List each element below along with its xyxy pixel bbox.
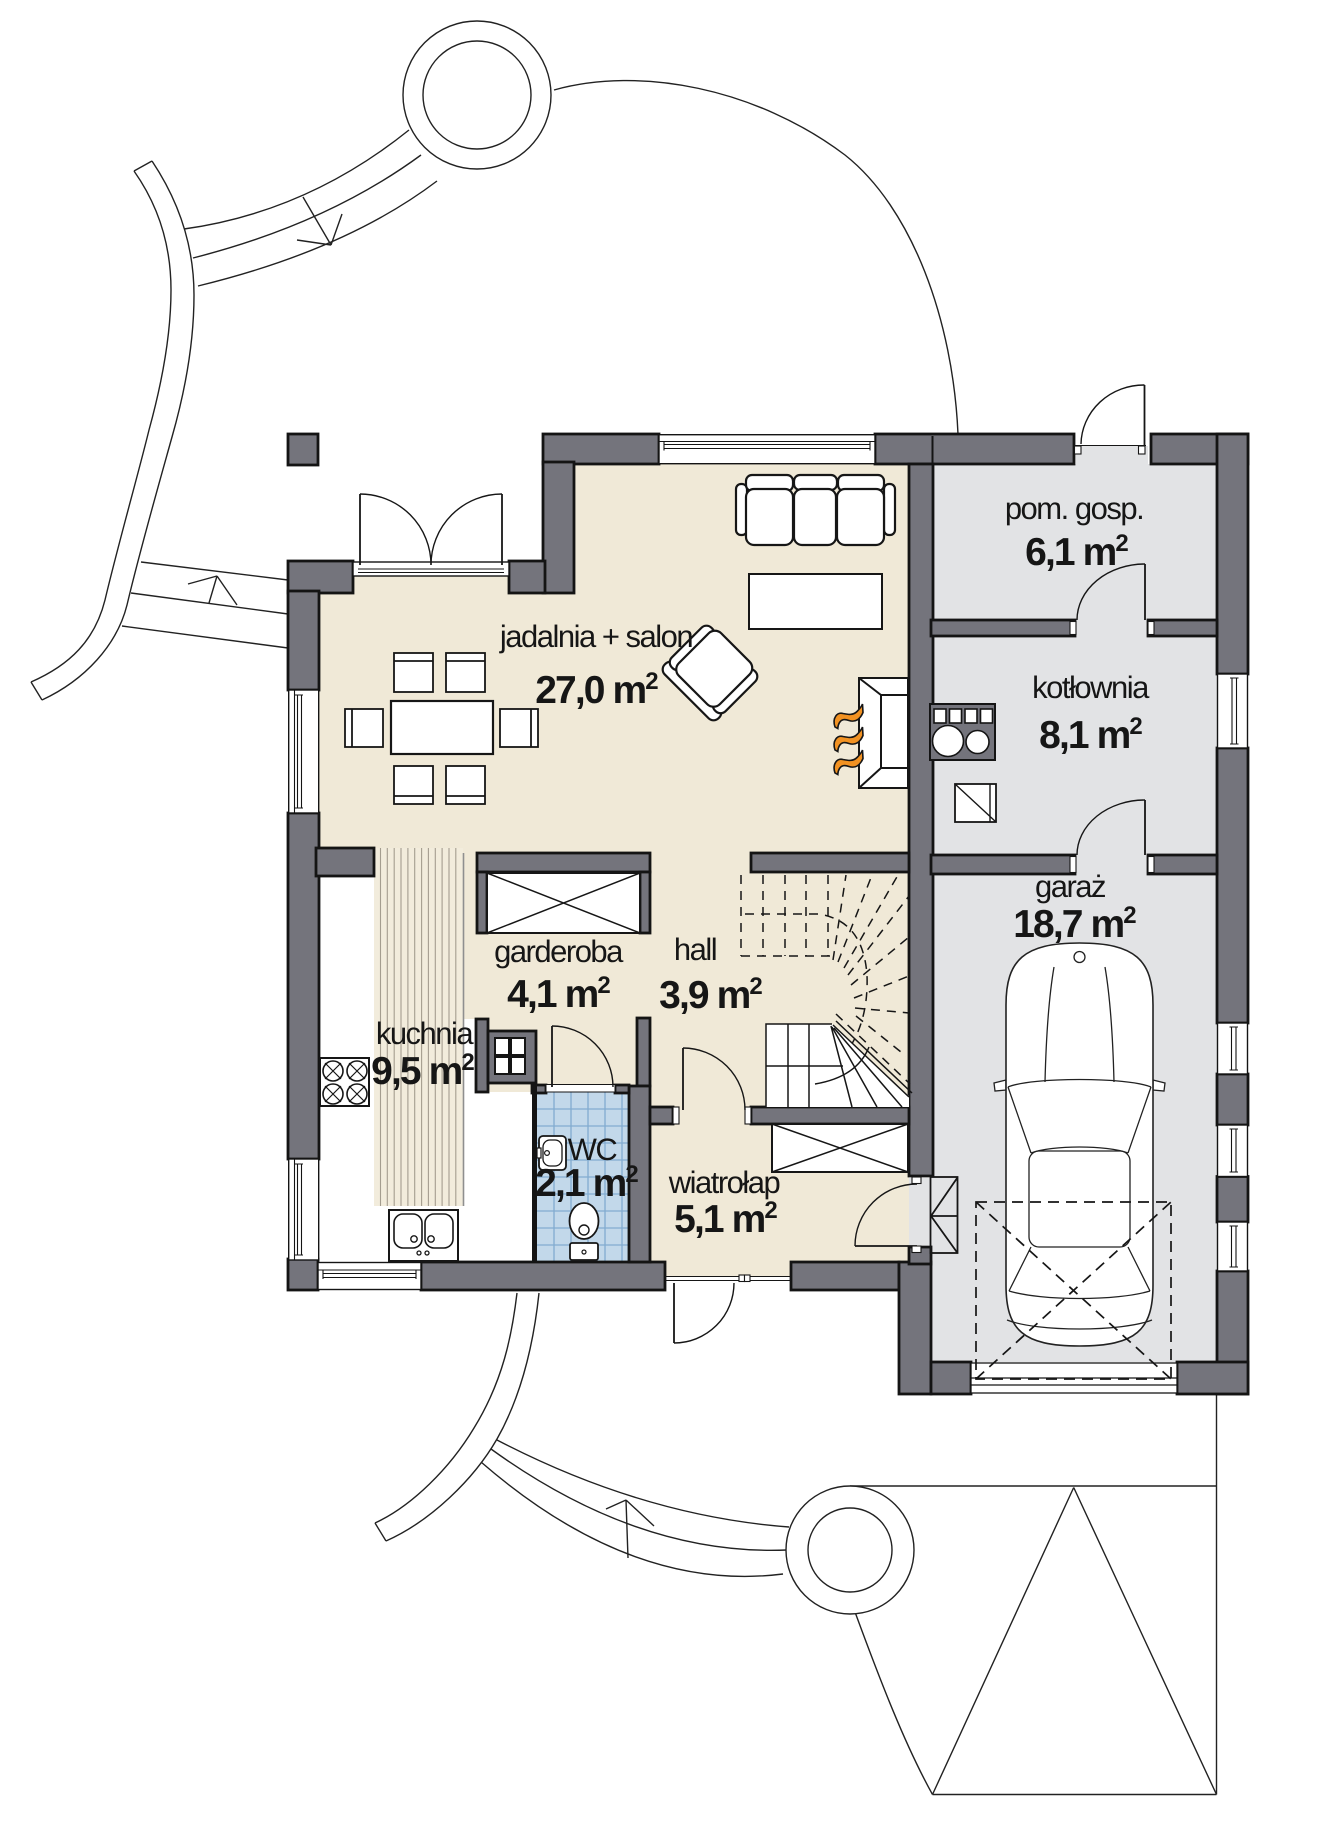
svg-text:kuchnia: kuchnia [376,1016,475,1051]
svg-text:18,7 m2: 18,7 m2 [1013,902,1136,946]
svg-text:garderoba: garderoba [494,934,624,969]
svg-text:6,1 m2: 6,1 m2 [1025,530,1128,574]
svg-text:kotłownia: kotłownia [1032,670,1150,705]
svg-text:wiatrołap: wiatrołap [668,1165,780,1200]
svg-text:2,1 m2: 2,1 m2 [535,1161,638,1205]
svg-text:8,1 m2: 8,1 m2 [1039,713,1142,757]
svg-text:5,1 m2: 5,1 m2 [674,1197,777,1241]
svg-text:27,0 m2: 27,0 m2 [535,668,658,712]
svg-text:3,9 m2: 3,9 m2 [659,973,762,1017]
svg-text:jadalnia + salon: jadalnia + salon [499,619,693,654]
svg-text:4,1 m2: 4,1 m2 [507,972,610,1016]
svg-text:9,5 m2: 9,5 m2 [371,1049,474,1093]
svg-text:garaż: garaż [1035,869,1105,904]
svg-text:hall: hall [674,932,716,967]
svg-text:pom. gosp.: pom. gosp. [1005,491,1143,526]
